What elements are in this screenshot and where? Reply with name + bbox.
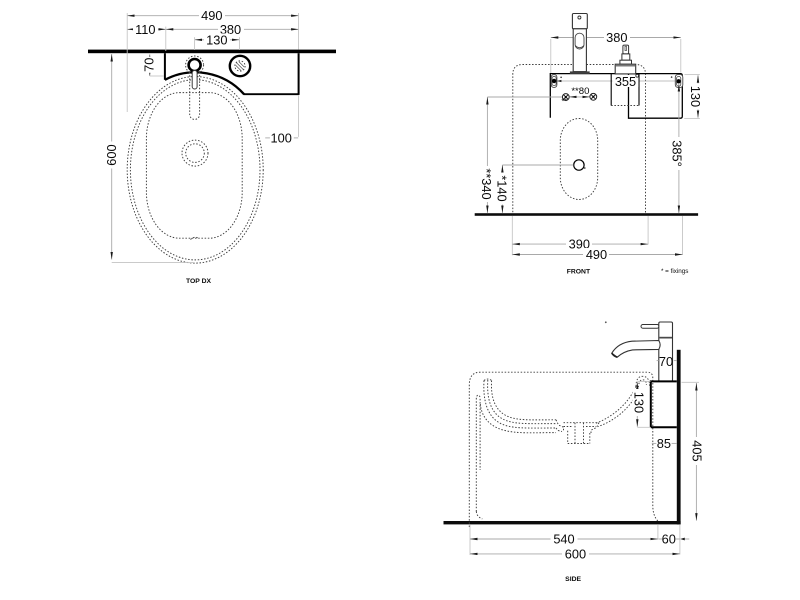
- svg-text:TOP DX: TOP DX: [186, 278, 212, 285]
- svg-text:130: 130: [632, 392, 647, 413]
- svg-text:380: 380: [606, 30, 627, 45]
- svg-text:60: 60: [662, 532, 676, 547]
- svg-text:600: 600: [565, 546, 586, 561]
- svg-text:100: 100: [271, 130, 292, 145]
- svg-text:540: 540: [553, 532, 574, 547]
- svg-text:130: 130: [206, 32, 227, 47]
- svg-text:**80: **80: [571, 86, 589, 97]
- svg-text:*140: *140: [494, 175, 509, 201]
- svg-text:**340: **340: [479, 168, 494, 199]
- svg-text:70: 70: [659, 354, 673, 369]
- svg-text:SIDE: SIDE: [565, 576, 581, 583]
- svg-text:355: 355: [615, 74, 636, 89]
- svg-text:110: 110: [135, 22, 155, 37]
- svg-text:130: 130: [688, 86, 703, 107]
- svg-text:70: 70: [141, 58, 156, 72]
- svg-text:385°: 385°: [670, 140, 685, 166]
- svg-text:* = fixings: * = fixings: [661, 268, 688, 275]
- svg-text:**: **: [561, 96, 567, 105]
- svg-text:FRONT: FRONT: [567, 268, 591, 275]
- svg-text:405: 405: [690, 440, 705, 461]
- svg-text:490: 490: [586, 247, 607, 262]
- svg-text:85: 85: [657, 436, 671, 451]
- svg-text:600: 600: [104, 144, 119, 165]
